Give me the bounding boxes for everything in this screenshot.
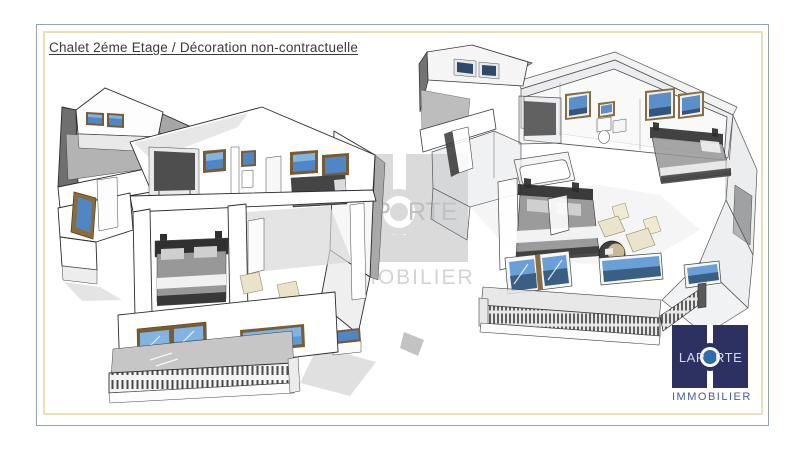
toilet-bowl xyxy=(599,131,610,144)
window-glass xyxy=(325,156,346,174)
bath-fixture xyxy=(242,170,253,188)
wash-basin xyxy=(613,119,626,133)
balcony-post xyxy=(698,283,706,308)
bathtub xyxy=(514,152,575,189)
wall-block xyxy=(60,237,97,270)
front-windows xyxy=(505,251,721,294)
logo-subtitle: IMMOBILIER xyxy=(672,391,748,403)
dormer xyxy=(419,45,532,152)
bed-pillow xyxy=(194,246,217,258)
brochure-page: { "page": { "title": "Chalet 2éme Etage … xyxy=(0,0,800,450)
closet-wall xyxy=(350,203,366,300)
page-title: Chalet 2éme Etage / Décoration non-contr… xyxy=(49,40,358,55)
bed-pillow xyxy=(161,248,184,260)
toilet-tank xyxy=(597,117,611,132)
shadow xyxy=(64,282,122,301)
door-leaf xyxy=(248,218,264,274)
logo-text-rte: RTE xyxy=(715,350,742,365)
skylight-glass xyxy=(457,62,473,74)
wall-pillar xyxy=(231,147,239,197)
bed-pillow xyxy=(700,140,721,153)
window-glass-dark xyxy=(510,273,537,291)
door-leaf xyxy=(548,195,569,235)
balcony-post xyxy=(479,298,488,327)
room-wall xyxy=(133,209,152,318)
door-leaf xyxy=(97,177,118,231)
logo-text-lap: LAP xyxy=(672,350,705,365)
table-cloth xyxy=(605,248,613,255)
door-glass xyxy=(76,197,92,233)
window-glass xyxy=(649,92,671,109)
shower-unit xyxy=(524,101,556,136)
skylight-glass xyxy=(482,65,496,76)
gable-wall xyxy=(427,45,528,86)
window-glass-dark xyxy=(543,268,569,286)
logo-square: LAP RTE xyxy=(672,325,748,388)
floorplan-left-view xyxy=(40,55,425,405)
window-glass xyxy=(243,152,254,165)
shower-unit xyxy=(154,151,195,191)
bed-pillow xyxy=(527,199,551,213)
chair xyxy=(240,272,263,294)
laporte-logo: LAP RTE IMMOBILIER xyxy=(672,325,748,403)
bed-pillow xyxy=(334,179,346,191)
balcony-post xyxy=(288,357,300,393)
room-wall xyxy=(228,204,248,317)
